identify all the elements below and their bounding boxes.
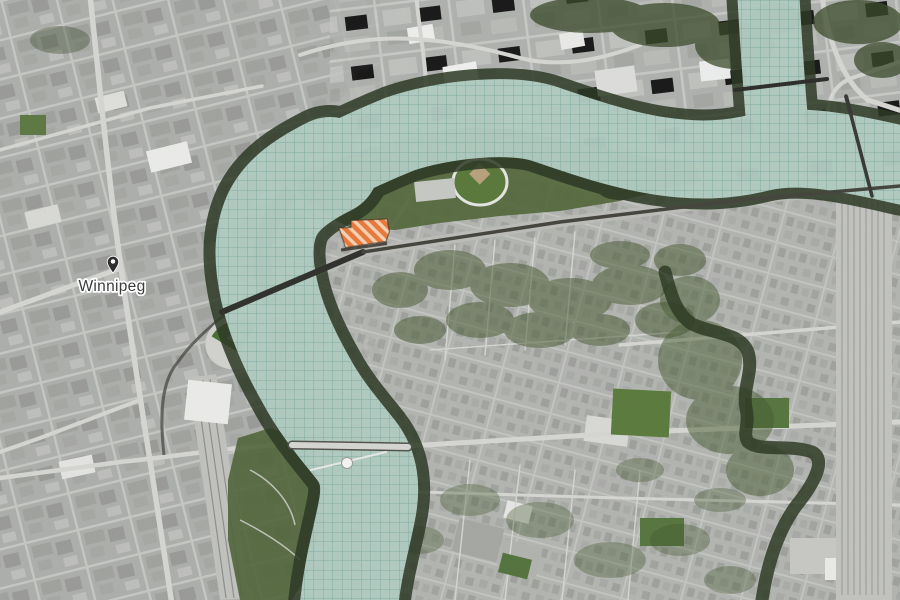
map-viewport[interactable]: Winnipeg: [0, 0, 900, 600]
aerial-map[interactable]: Winnipeg: [0, 0, 900, 600]
film-grain: [0, 0, 900, 600]
city-label: Winnipeg: [78, 278, 145, 295]
